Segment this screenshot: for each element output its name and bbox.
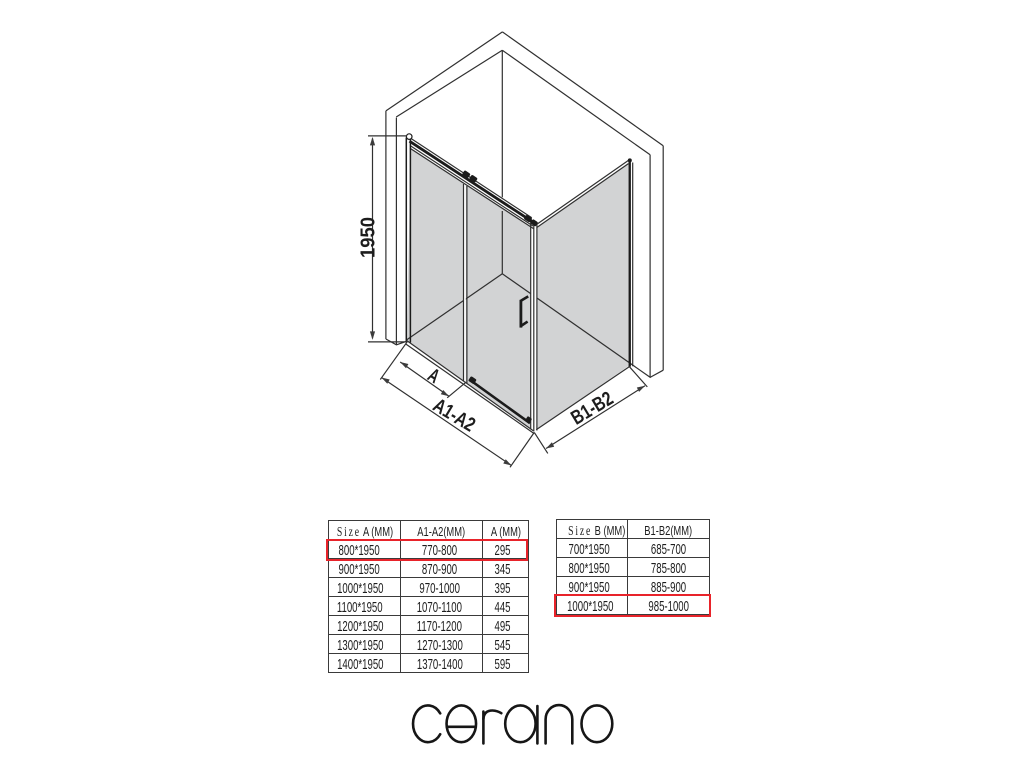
svg-text:A: A xyxy=(424,364,444,388)
svg-text:A1-A2: A1-A2 xyxy=(429,394,479,436)
svg-text:1950: 1950 xyxy=(358,217,380,258)
